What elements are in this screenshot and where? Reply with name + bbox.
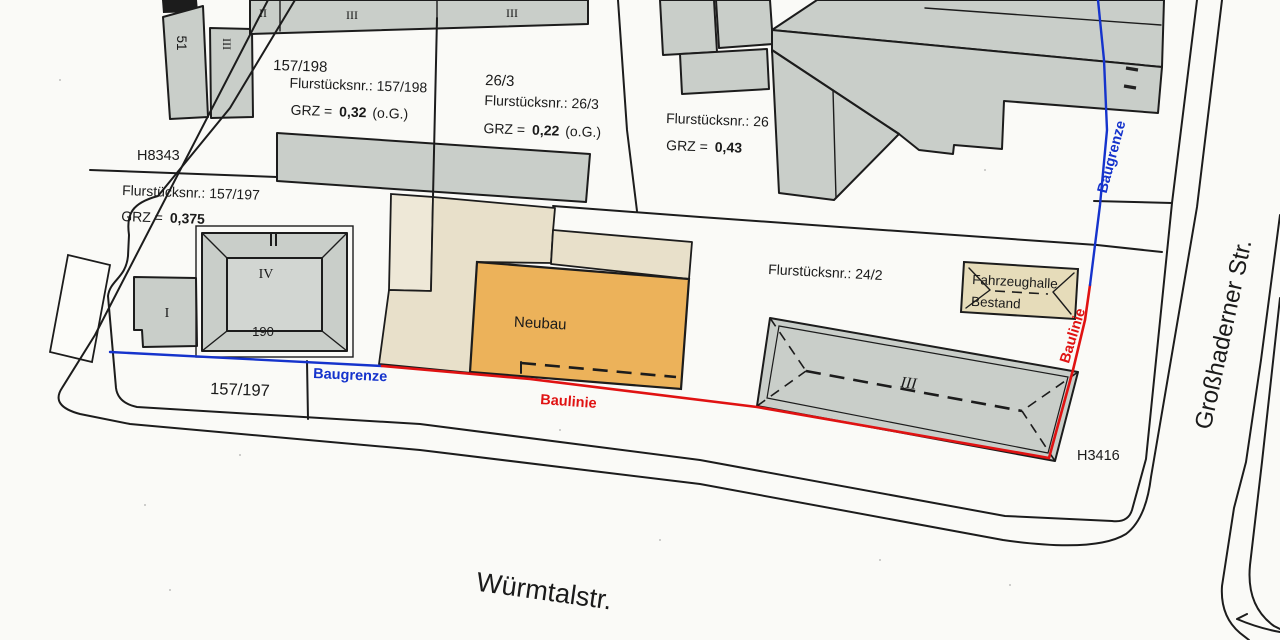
- complex26-rect-b: [716, 0, 773, 48]
- grz-26: GRZ =0,43: [666, 137, 743, 156]
- storey-label-i: I: [165, 306, 170, 321]
- building-iv: [196, 226, 353, 357]
- neubau-building: [470, 262, 689, 389]
- storey-label-iv: IV: [259, 267, 274, 282]
- storey-label-iii-2: III: [506, 6, 518, 20]
- existing-building-cream-column: [389, 194, 433, 291]
- boundary-short-vertical: [307, 361, 308, 419]
- cadastral-map: 157/198 Flurstücksnr.: 157/198 GRZ =0,32…: [0, 0, 1280, 640]
- storey-label-hall-iii: III: [899, 374, 919, 393]
- storey-label-iii-1: III: [346, 8, 358, 22]
- parcel-number-26-3: 26/3: [485, 72, 515, 90]
- building-iv-roof-flat: [227, 258, 322, 331]
- building-51: [163, 6, 208, 119]
- bestand-label: Bestand: [971, 294, 1021, 312]
- site-plan-page: 157/198 Flurstücksnr.: 157/198 GRZ =0,32…: [0, 0, 1280, 640]
- building-iv-number: 190: [252, 324, 274, 339]
- parcel-number-157-198: 157/198: [273, 57, 328, 76]
- marker-h8343: H8343: [137, 148, 180, 164]
- marker-h3416: H3416: [1077, 448, 1120, 464]
- parcel-number-157-197: 157/197: [210, 380, 270, 400]
- complex26-rect-a: [660, 0, 717, 55]
- baugrenze-label-left: Baugrenze: [313, 366, 388, 385]
- storey-label-iii-rotated: III: [220, 38, 234, 50]
- storey-label-ii: II: [259, 6, 267, 20]
- complex26-rect-c: [680, 49, 769, 94]
- neubau-label: Neubau: [514, 314, 567, 334]
- house-number-51: 51: [174, 35, 189, 50]
